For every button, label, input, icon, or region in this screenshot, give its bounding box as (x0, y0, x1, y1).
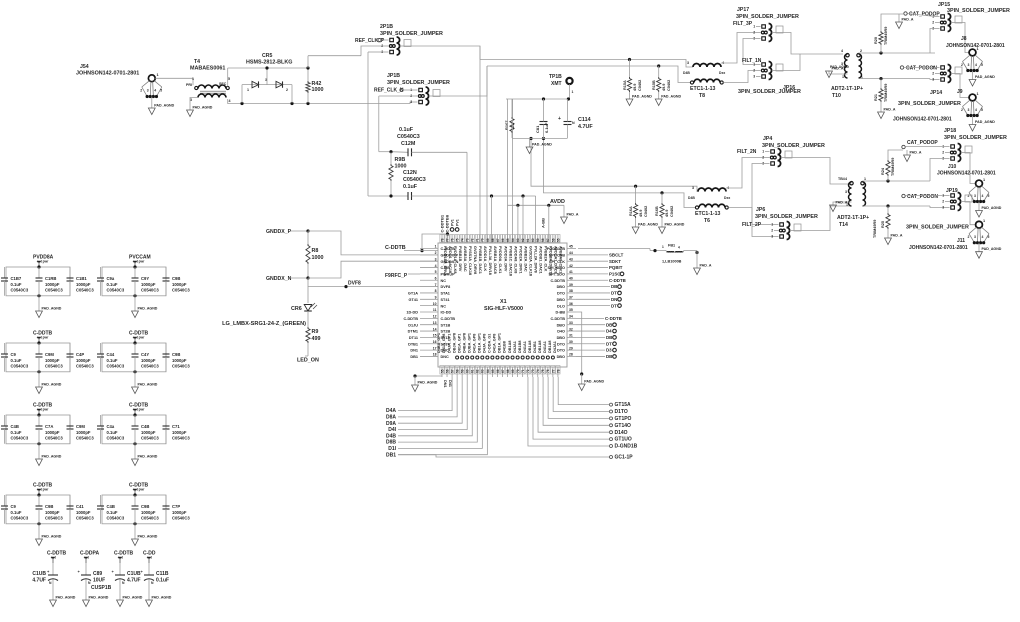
svg-text:3PIN_SOLDER_JUMPER: 3PIN_SOLDER_JUMPER (380, 31, 443, 37)
svg-text:PVBB1B_DRV: PVBB1B_DRV (458, 246, 462, 272)
svg-text:3PIN_SOLDER_JUMPER: 3PIN_SOLDER_JUMPER (944, 135, 1007, 141)
svg-text:DT: DT (606, 341, 612, 346)
svg-text:DN1: DN1 (443, 380, 447, 388)
svg-text:1000: 1000 (312, 255, 324, 261)
svg-text:C0540C3: C0540C3 (141, 363, 159, 368)
svg-text:1: 1 (864, 177, 866, 181)
svg-text:35: 35 (569, 308, 573, 312)
svg-text:2: 2 (968, 194, 970, 198)
svg-text:C9B: C9B (45, 504, 53, 509)
svg-text:3PIN_SOLDER_JUMPER: 3PIN_SOLDER_JUMPER (736, 14, 799, 20)
svg-text:PVDD2A_DRV1: PVDD2A_DRV1 (518, 246, 522, 274)
svg-text:499: 499 (312, 336, 321, 342)
svg-text:C81: C81 (535, 125, 540, 133)
svg-text:3: 3 (845, 190, 847, 194)
svg-text:1: 1 (435, 245, 437, 249)
svg-text:2: 2 (932, 21, 934, 25)
svg-text:2: 2 (968, 235, 970, 239)
svg-text:C4B: C4B (107, 504, 115, 509)
svg-text:ADT2-1T-1P+: ADT2-1T-1P+ (831, 86, 863, 92)
svg-text:17: 17 (433, 346, 437, 350)
svg-text:0.1uF: 0.1uF (156, 578, 169, 584)
svg-text:D-BB: D-BB (556, 311, 566, 315)
svg-text:T8: T8 (699, 93, 705, 99)
svg-text:DVF8: DVF8 (348, 281, 361, 287)
svg-text:FILT_3P: FILT_3P (733, 21, 753, 27)
svg-text:SBCLT: SBCLT (609, 252, 624, 257)
svg-text:D1TO: D1TO (615, 409, 628, 415)
svg-text:78: 78 (556, 369, 560, 373)
svg-text:42: 42 (569, 264, 573, 268)
svg-text:C-DDTB: C-DDTB (550, 317, 565, 321)
svg-text:C0540C3: C0540C3 (397, 134, 420, 140)
svg-text:net pwr: net pwr (133, 408, 145, 412)
svg-text:PVBB1C_DAC18: PVBB1C_DAC18 (508, 246, 512, 276)
svg-text:R25: R25 (881, 221, 885, 228)
svg-text:68: 68 (491, 238, 495, 242)
svg-text:ETC1-1-13: ETC1-1-13 (695, 211, 720, 217)
svg-text:3: 3 (410, 100, 412, 104)
svg-text:60: 60 (466, 369, 470, 373)
svg-text:2: 2 (942, 151, 944, 155)
svg-text:GVDD2A_CLK18: GVDD2A_CLK18 (528, 246, 532, 276)
svg-text:C1RB: C1RB (45, 276, 56, 281)
svg-text:NC: NC (441, 304, 447, 308)
svg-text:PVLL3A_DRV18: PVLL3A_DRV18 (488, 246, 492, 275)
svg-text:D4JA_GP1: D4JA_GP1 (447, 334, 451, 353)
svg-text:C0540C3: C0540C3 (76, 287, 94, 292)
svg-text:C0540C3: C0540C3 (45, 363, 63, 368)
svg-text:30: 30 (569, 340, 573, 344)
svg-text:1: 1 (753, 63, 755, 67)
svg-text:C1B7: C1B7 (11, 276, 22, 281)
svg-text:JP19: JP19 (946, 188, 958, 194)
svg-text:D9A: D9A (386, 421, 396, 427)
svg-text:1000pF: 1000pF (76, 510, 91, 515)
svg-text:1: 1 (861, 76, 863, 80)
svg-text:GNDDX_N: GNDDX_N (266, 276, 292, 282)
svg-text:2: 2 (435, 251, 437, 255)
svg-text:DB1: DB1 (410, 355, 418, 359)
svg-text:3PIN_SOLDER_JUMPER: 3PIN_SOLDER_JUMPER (387, 80, 450, 86)
svg-text:D8A: D8A (386, 415, 396, 421)
svg-text:45: 45 (569, 245, 573, 249)
svg-text:3: 3 (942, 206, 944, 210)
svg-text:DN: DN (611, 297, 617, 302)
svg-text:R21: R21 (874, 94, 878, 101)
svg-text:SIG-HLF-V5000: SIG-HLF-V5000 (484, 306, 523, 312)
svg-text:4.7UF: 4.7UF (578, 124, 593, 130)
svg-text:49.9: 49.9 (662, 84, 666, 91)
svg-text:C0540C3: C0540C3 (172, 515, 190, 520)
svg-text:2: 2 (753, 69, 755, 73)
svg-text:1: 1 (932, 66, 934, 70)
svg-text:C11B: C11B (156, 571, 169, 577)
svg-text:0.1uF: 0.1uF (11, 510, 22, 515)
svg-text:T6: T6 (704, 218, 710, 224)
svg-text:4: 4 (678, 246, 680, 250)
svg-text:PAD_A: PAD_A (891, 234, 903, 238)
svg-text:72: 72 (471, 238, 475, 242)
svg-text:JOHNSON142-0701-2801: JOHNSON142-0701-2801 (909, 245, 968, 251)
svg-text:C114: C114 (578, 117, 591, 123)
svg-text:ST2B: ST2B (441, 330, 451, 334)
svg-text:PAD_AGND: PAD_AGND (982, 206, 1002, 210)
svg-text:64: 64 (511, 238, 515, 242)
svg-text:TRIM49R9: TRIM49R9 (884, 84, 888, 102)
svg-text:D-GND1B: D-GND1B (615, 444, 638, 450)
svg-text:66: 66 (501, 238, 505, 242)
svg-text:C9Y: C9Y (141, 276, 149, 281)
svg-text:DTO: DTO (557, 349, 565, 353)
svg-text:69: 69 (511, 369, 515, 373)
svg-text:PAD_AGND: PAD_AGND (975, 120, 995, 124)
svg-text:C0540C3: C0540C3 (141, 435, 159, 440)
svg-text:74: 74 (461, 238, 465, 242)
svg-text:LG_LMBX-SRG1-24-Z_(GREEN): LG_LMBX-SRG1-24-Z_(GREEN) (222, 321, 306, 327)
svg-text:2: 2 (286, 88, 288, 92)
svg-text:0.1uF: 0.1uF (11, 282, 22, 287)
svg-text:3: 3 (968, 108, 970, 112)
svg-text:C-DDTB: C-DDTB (47, 551, 67, 557)
svg-text:11: 11 (433, 308, 437, 312)
svg-text:5: 5 (988, 235, 990, 239)
svg-text:PAD_AGND: PAD_AGND (42, 307, 62, 311)
svg-text:PRI: PRI (186, 83, 192, 87)
svg-text:CR6: CR6 (291, 306, 302, 312)
svg-text:36: 36 (569, 302, 573, 306)
svg-text:1000pF: 1000pF (45, 282, 60, 287)
svg-text:1000: 1000 (312, 87, 324, 93)
svg-text:5: 5 (228, 77, 230, 81)
svg-text:DB1A8: DB1A8 (548, 341, 552, 353)
svg-text:D8B: D8B (386, 440, 396, 446)
svg-text:T4: T4 (194, 59, 200, 65)
svg-text:DJBA_GP1: DJBA_GP1 (467, 333, 471, 353)
svg-text:C1UB: C1UB (32, 571, 46, 577)
svg-text:C0540C3: C0540C3 (45, 515, 63, 520)
svg-text:75: 75 (456, 238, 460, 242)
svg-text:C0402: C0402 (644, 206, 648, 217)
svg-text:+: + (558, 116, 561, 122)
svg-text:D4JA1: D4JA1 (553, 341, 557, 353)
svg-text:PAD_AGND: PAD_AGND (975, 75, 995, 79)
svg-text:1000pF: 1000pF (172, 430, 187, 435)
svg-text:DB1A_GP1: DB1A_GP1 (478, 333, 482, 353)
svg-text:5: 5 (981, 63, 983, 67)
svg-text:4: 4 (845, 177, 847, 181)
svg-text:32: 32 (569, 327, 573, 331)
svg-text:18: 18 (433, 353, 437, 357)
svg-text:C-DDTB: C-DDTB (385, 245, 406, 251)
svg-text:D4I: D4I (388, 427, 396, 433)
svg-text:28: 28 (569, 353, 573, 357)
svg-text:31: 31 (569, 334, 573, 338)
svg-text:DBO: DBO (557, 355, 565, 359)
svg-text:Dxx: Dxx (719, 71, 725, 75)
svg-text:J8: J8 (961, 36, 967, 42)
svg-text:65: 65 (491, 369, 495, 373)
svg-text:DB: DB (606, 335, 612, 340)
svg-text:1000pF: 1000pF (76, 358, 91, 363)
svg-text:C0540C3: C0540C3 (107, 435, 125, 440)
svg-text:DB: DB (611, 284, 617, 289)
svg-text:JOHNSON142-0701-2801: JOHNSON142-0701-2801 (946, 43, 1005, 49)
svg-text:4: 4 (841, 49, 843, 53)
svg-text:6: 6 (435, 276, 437, 280)
svg-text:STA1: STA1 (441, 292, 450, 296)
svg-text:C-DDTB: C-DDTB (114, 551, 134, 557)
svg-text:R16A: R16A (629, 206, 633, 216)
svg-text:IO-DD: IO-DD (441, 311, 452, 315)
svg-text:DBJA_GP8: DBJA_GP8 (452, 333, 456, 353)
svg-text:DBO: DBO (557, 298, 565, 302)
svg-text:J10: J10 (948, 164, 957, 170)
svg-text:TRIM49R9: TRIM49R9 (891, 158, 895, 176)
svg-text:net pwr: net pwr (133, 488, 145, 492)
svg-text:16: 16 (433, 340, 437, 344)
svg-text:C-DDTB: C-DDTB (403, 317, 418, 321)
svg-text:1000pF: 1000pF (141, 282, 156, 287)
svg-text:JOHNSON142-0701-2801: JOHNSON142-0701-2801 (76, 71, 139, 77)
svg-text:0.1uF: 0.1uF (11, 358, 22, 363)
svg-text:D14O: D14O (615, 430, 628, 436)
svg-text:D4B: D4B (386, 433, 396, 439)
svg-text:TRIM49R9: TRIM49R9 (873, 220, 877, 238)
svg-text:63: 63 (481, 369, 485, 373)
svg-text:C7P: C7P (172, 504, 180, 509)
svg-text:3: 3 (687, 61, 689, 65)
svg-text:57: 57 (450, 369, 454, 373)
svg-text:AVDDA8_CLK8: AVDDA8_CLK8 (513, 246, 517, 273)
svg-text:R9B: R9B (395, 157, 406, 163)
svg-text:5: 5 (160, 89, 162, 93)
svg-text:1000pF: 1000pF (45, 358, 60, 363)
svg-text:1: 1 (247, 88, 249, 92)
svg-text:PAD_AGND: PAD_AGND (42, 535, 62, 539)
svg-text:1000pF: 1000pF (45, 430, 60, 435)
svg-text:4: 4 (982, 194, 984, 198)
svg-text:PAD_A: PAD_A (902, 18, 914, 22)
svg-text:GT1A: GT1A (408, 292, 418, 296)
svg-text:T14: T14 (839, 222, 848, 228)
svg-text:C-DDTB: C-DDTB (609, 278, 626, 283)
svg-text:3: 3 (147, 89, 149, 93)
svg-text:GT41: GT41 (409, 298, 419, 302)
svg-text:C12M: C12M (401, 141, 416, 147)
svg-text:D41A1: D41A1 (543, 341, 547, 353)
svg-text:C-DDTB: C-DDTB (441, 317, 456, 321)
svg-text:1: 1 (157, 73, 159, 77)
svg-text:C4Y: C4Y (141, 352, 149, 357)
svg-text:1: 1 (942, 194, 944, 198)
svg-text:1: 1 (771, 223, 773, 227)
svg-text:MABAES0061: MABAES0061 (190, 66, 225, 72)
svg-text:PAD_AGND: PAD_AGND (42, 455, 62, 459)
svg-text:ETC1-1-13: ETC1-1-13 (690, 86, 715, 92)
svg-text:C0540C3: C0540C3 (141, 287, 159, 292)
svg-text:C9a: C9a (107, 276, 115, 281)
svg-text:PVBB2A_CLK: PVBB2A_CLK (544, 246, 548, 272)
svg-text:C0540C3: C0540C3 (107, 287, 125, 292)
svg-text:PAD_A: PAD_A (910, 151, 922, 155)
svg-text:0.1uF: 0.1uF (107, 510, 118, 515)
svg-text:10UF: 10UF (93, 578, 105, 584)
svg-text:AVBB1A_DAC8: AVBB1A_DAC8 (493, 246, 497, 274)
svg-text:1000pF: 1000pF (141, 510, 156, 515)
svg-text:C0402: C0402 (638, 80, 642, 91)
svg-text:2: 2 (961, 63, 963, 67)
svg-text:3: 3 (435, 257, 437, 261)
svg-text:62: 62 (476, 369, 480, 373)
svg-text:D4BA_GP1: D4BA_GP1 (437, 333, 441, 353)
svg-text:1: 1 (983, 219, 985, 223)
svg-text:C0540C3: C0540C3 (172, 287, 190, 292)
svg-text:PAD_AGND: PAD_AGND (665, 223, 685, 227)
svg-text:T10: T10 (832, 93, 841, 99)
svg-text:7: 7 (435, 283, 437, 287)
svg-text:PAD_AGND: PAD_AGND (661, 95, 681, 99)
svg-text:PVDD0A_CLK1: PVDD0A_CLK1 (498, 246, 502, 273)
svg-text:12: 12 (433, 315, 437, 319)
svg-text:D41A1: D41A1 (523, 341, 527, 353)
svg-text:3: 3 (968, 63, 970, 67)
svg-text:D4B: D4B (688, 196, 695, 200)
svg-text:AVBB2A_DAC: AVBB2A_DAC (523, 246, 527, 272)
svg-text:D1JU: D1JU (408, 323, 418, 327)
svg-text:DBO: DBO (557, 323, 565, 327)
svg-text:PV1: PV1 (456, 219, 460, 226)
svg-text:DB1B8: DB1B8 (518, 341, 522, 353)
svg-text:C7A: C7A (45, 424, 53, 429)
svg-text:PAD_AGND: PAD_AGND (152, 596, 172, 600)
svg-text:75: 75 (541, 369, 545, 373)
svg-text:1: 1 (977, 47, 979, 51)
svg-text:D4B: D4B (683, 71, 690, 75)
svg-text:77: 77 (445, 238, 449, 242)
svg-text:C9B: C9B (172, 352, 180, 357)
svg-text:61: 61 (526, 238, 530, 242)
svg-text:DT: DT (611, 303, 617, 308)
svg-text:DT11: DT11 (409, 336, 418, 340)
svg-text:58: 58 (456, 369, 460, 373)
svg-text:N: N (572, 121, 575, 125)
svg-text:3PIN_SOLDER_JUMPER: 3PIN_SOLDER_JUMPER (738, 89, 801, 95)
svg-text:PAD_AGND: PAD_AGND (584, 380, 604, 384)
svg-text:9: 9 (435, 296, 437, 300)
svg-text:P1SO: P1SO (609, 272, 621, 277)
svg-text:ST1B: ST1B (441, 323, 451, 327)
svg-text:C1UB: C1UB (127, 571, 141, 577)
svg-text:2: 2 (140, 89, 142, 93)
svg-text:59: 59 (461, 369, 465, 373)
svg-text:3PIN_SOLDER_JUMPER: 3PIN_SOLDER_JUMPER (898, 101, 961, 107)
svg-text:AVDD: AVDD (550, 199, 565, 205)
svg-text:C71: C71 (172, 424, 180, 429)
svg-text:71: 71 (476, 238, 480, 242)
svg-text:0.1uF: 0.1uF (107, 282, 118, 287)
svg-text:JP17: JP17 (737, 7, 749, 13)
svg-text:NC: NC (441, 279, 447, 283)
svg-text:net pwr: net pwr (37, 260, 49, 264)
svg-text:C9B: C9B (141, 504, 149, 509)
svg-text:C41: C41 (76, 504, 84, 509)
svg-text:Dxx: Dxx (724, 196, 730, 200)
svg-text:3: 3 (974, 235, 976, 239)
svg-text:1000pF: 1000pF (172, 510, 187, 515)
svg-text:C12N: C12N (403, 170, 417, 176)
svg-text:J9: J9 (957, 89, 963, 95)
svg-text:14: 14 (433, 327, 437, 331)
svg-text:GT14O: GT14O (615, 423, 632, 429)
svg-text:58: 58 (541, 238, 545, 242)
svg-text:FB1: FB1 (668, 244, 675, 248)
svg-text:DLO: DLO (557, 304, 565, 308)
svg-text:PAD_AGND: PAD_AGND (418, 381, 438, 385)
svg-text:PVDD1A_CLK8: PVDD1A_CLK8 (453, 246, 457, 273)
svg-text:JP1B: JP1B (387, 73, 400, 79)
svg-text:C0540C3: C0540C3 (11, 435, 29, 440)
svg-text:ADT2-1T-1P+: ADT2-1T-1P+ (837, 215, 869, 221)
svg-text:C4B: C4B (141, 424, 149, 429)
svg-text:41: 41 (569, 270, 573, 274)
svg-text:70: 70 (481, 238, 485, 242)
svg-text:C0540C3: C0540C3 (11, 363, 29, 368)
svg-text:GT1UO: GT1UO (615, 437, 632, 443)
svg-text:C0540C3: C0540C3 (45, 287, 63, 292)
svg-text:PAD_AGND: PAD_AGND (154, 104, 174, 108)
svg-text:FILT_1N: FILT_1N (742, 58, 762, 64)
svg-text:5: 5 (435, 270, 437, 274)
svg-text:38: 38 (569, 289, 573, 293)
svg-text:DT: DT (611, 291, 617, 296)
svg-text:8: 8 (435, 289, 437, 293)
svg-text:C44: C44 (107, 352, 115, 357)
svg-text:PVLL2A_DRV8: PVLL2A_DRV8 (534, 246, 538, 273)
svg-text:DNC: DNC (441, 355, 449, 359)
svg-text:C0540C3: C0540C3 (11, 515, 29, 520)
svg-text:0.1uF: 0.1uF (11, 430, 22, 435)
svg-text:2: 2 (771, 229, 773, 233)
svg-text:13: 13 (433, 321, 437, 325)
svg-text:JP6: JP6 (756, 207, 765, 213)
svg-text:C0402: C0402 (670, 206, 674, 217)
svg-text:FILT_2N: FILT_2N (737, 149, 757, 155)
svg-text:3: 3 (932, 78, 934, 82)
svg-text:net pwr: net pwr (37, 336, 49, 340)
svg-text:C9B: C9B (172, 276, 180, 281)
svg-text:C0402: C0402 (667, 80, 671, 91)
svg-text:DBO: DBO (557, 336, 565, 340)
svg-text:HSMS-2812-BLKG: HSMS-2812-BLKG (246, 60, 292, 66)
svg-text:D4JB1: D4JB1 (533, 341, 537, 353)
svg-text:2: 2 (762, 156, 764, 160)
svg-text:4: 4 (154, 89, 156, 93)
svg-text:5: 5 (981, 108, 983, 112)
svg-text:R15A: R15A (623, 80, 627, 90)
svg-text:PAD_A: PAD_A (884, 108, 896, 112)
svg-text:4.7UF: 4.7UF (127, 578, 141, 584)
svg-text:TP1B: TP1B (549, 74, 562, 80)
svg-text:C0540C3: C0540C3 (107, 515, 125, 520)
svg-text:2: 2 (961, 108, 963, 112)
svg-text:PAD_AGND: PAD_AGND (138, 383, 158, 387)
svg-text:PVSS1A_CLK18: PVSS1A_CLK18 (468, 246, 472, 275)
svg-text:44: 44 (569, 251, 573, 255)
svg-text:56: 56 (551, 238, 555, 242)
svg-text:net pwr: net pwr (37, 488, 49, 492)
svg-text:C0540C3: C0540C3 (76, 515, 94, 520)
